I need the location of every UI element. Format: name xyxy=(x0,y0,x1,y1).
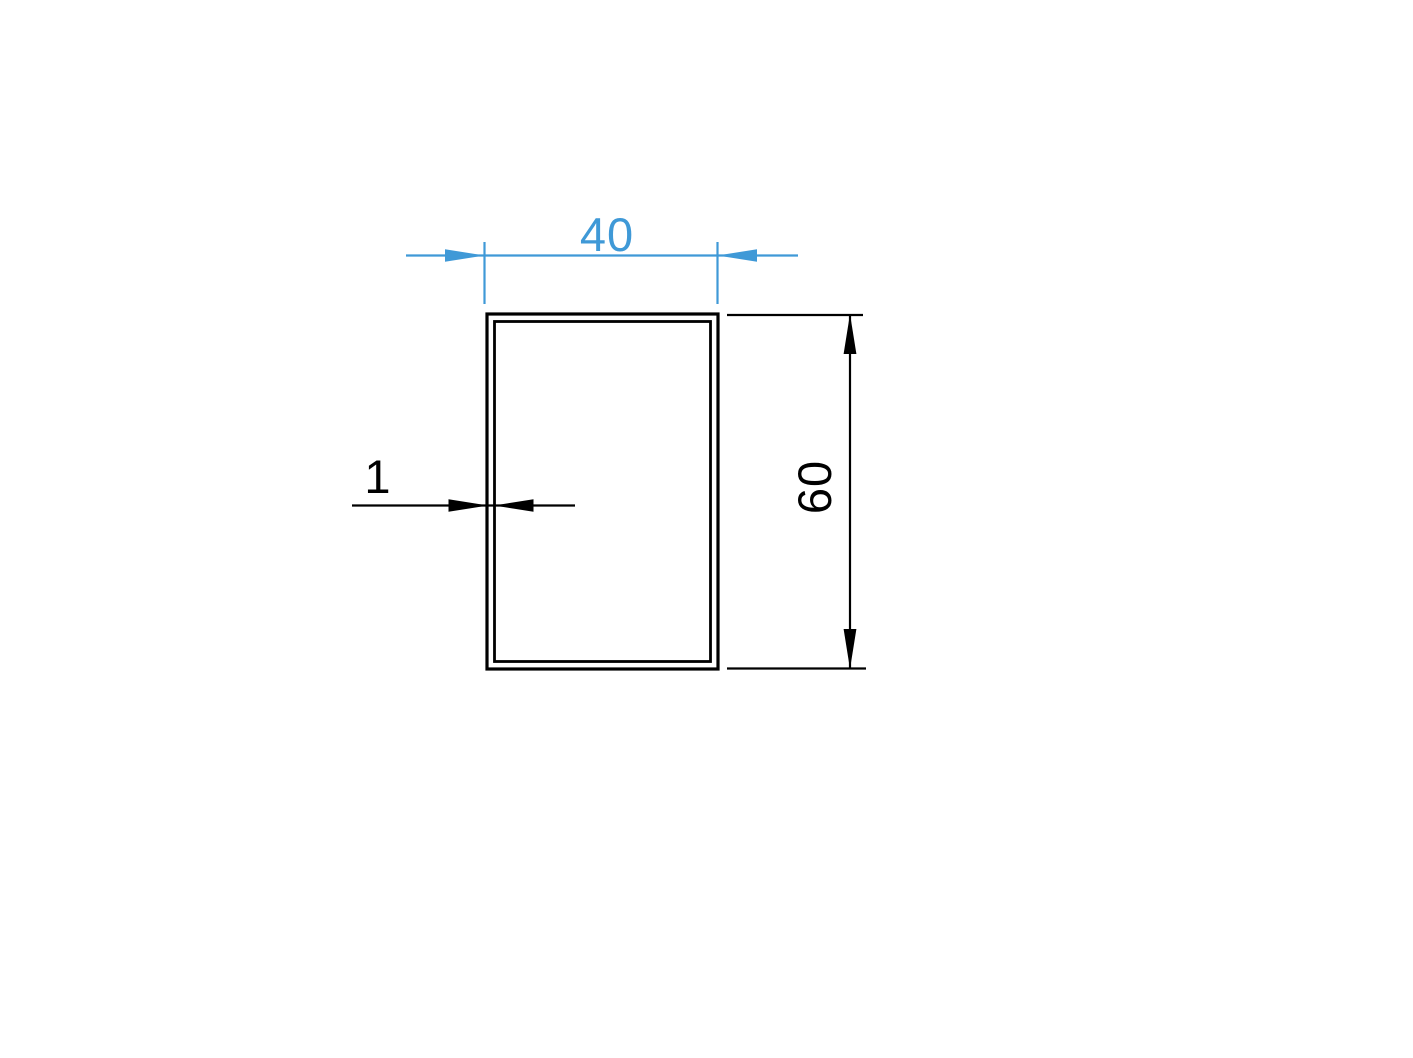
height-arrowhead-top xyxy=(844,314,857,354)
width-dimension-label: 40 xyxy=(580,208,634,261)
width-arrowhead-left xyxy=(445,249,485,262)
tube-cross-section xyxy=(487,314,718,669)
height-dimension-label: 60 xyxy=(788,460,841,514)
drawing-canvas: 40 60 1 xyxy=(0,0,1413,1058)
wall-thickness-dimension: 1 xyxy=(352,450,575,512)
tube-outer-outline xyxy=(487,314,718,669)
tube-inner-outline xyxy=(495,322,711,662)
thickness-dimension-label: 1 xyxy=(364,450,391,503)
height-arrowhead-bottom xyxy=(844,629,857,669)
technical-drawing-svg: 40 60 1 xyxy=(0,0,1413,1058)
height-dimension: 60 xyxy=(727,314,866,669)
width-dimension: 40 xyxy=(406,208,798,304)
thickness-arrowhead-right xyxy=(494,499,534,512)
width-arrowhead-right xyxy=(718,249,758,262)
thickness-arrowhead-left xyxy=(449,499,489,512)
